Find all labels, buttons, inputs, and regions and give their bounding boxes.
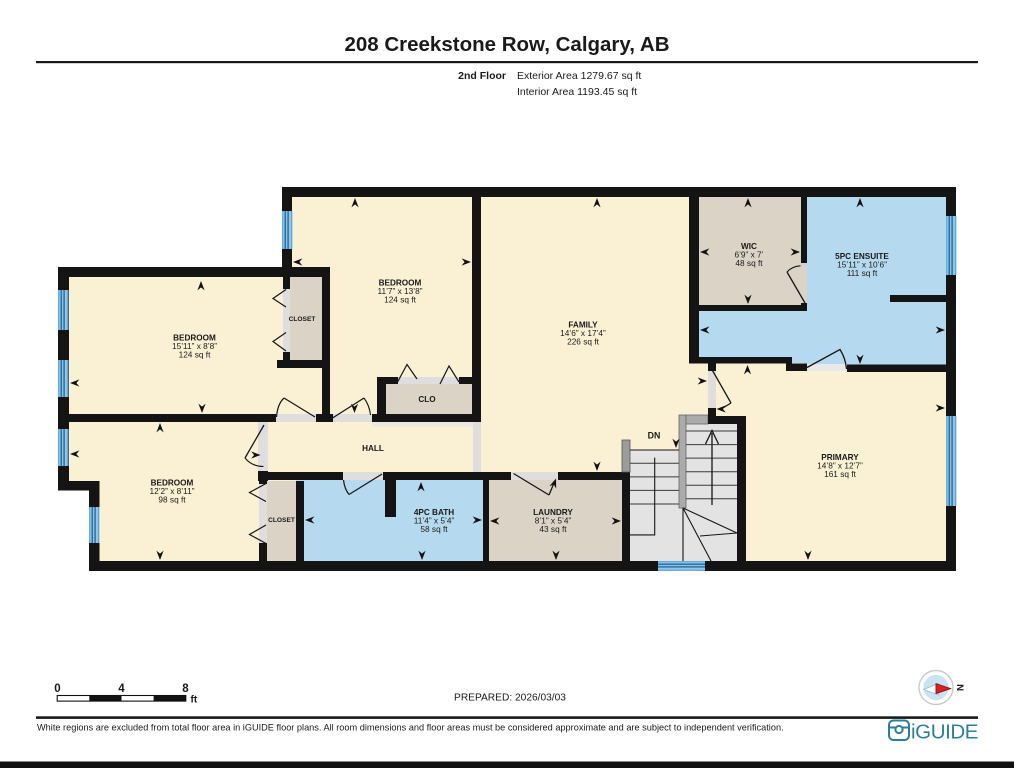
svg-text:4: 4 (118, 683, 125, 695)
svg-text:HALL: HALL (362, 444, 384, 453)
svg-text:58 sq ft: 58 sq ft (420, 524, 448, 534)
svg-text:N: N (954, 684, 965, 691)
svg-text:Interior Area 1193.45 sq ft: Interior Area 1193.45 sq ft (517, 86, 637, 98)
svg-text:PREPARED: 2026/03/03: PREPARED: 2026/03/03 (454, 693, 566, 704)
svg-text:ft: ft (191, 695, 198, 706)
svg-text:48 sq ft: 48 sq ft (735, 258, 763, 268)
svg-text:2nd Floor: 2nd Floor (458, 70, 506, 82)
svg-text:DN: DN (648, 431, 661, 441)
svg-text:208 Creekstone Row, Calgary, A: 208 Creekstone Row, Calgary, AB (344, 33, 669, 56)
svg-text:CLOSET: CLOSET (289, 316, 316, 323)
svg-text:CLO: CLO (418, 395, 436, 404)
svg-text:Exterior Area 1279.67 sq ft: Exterior Area 1279.67 sq ft (517, 70, 641, 82)
svg-text:0: 0 (54, 683, 60, 695)
svg-text:124 sq ft: 124 sq ft (384, 294, 417, 304)
svg-text:124 sq ft: 124 sq ft (179, 349, 212, 359)
svg-text:White regions are excluded fro: White regions are excluded from total fl… (37, 723, 784, 733)
svg-text:226 sq ft: 226 sq ft (567, 337, 600, 347)
svg-text:8: 8 (182, 683, 189, 695)
svg-text:43 sq ft: 43 sq ft (539, 524, 567, 534)
svg-text:161 sq ft: 161 sq ft (824, 469, 857, 479)
svg-text:iGUIDE: iGUIDE (911, 721, 978, 744)
svg-text:CLOSET: CLOSET (268, 517, 295, 524)
svg-text:111 sq ft: 111 sq ft (847, 268, 878, 278)
svg-text:98 sq ft: 98 sq ft (158, 495, 186, 505)
